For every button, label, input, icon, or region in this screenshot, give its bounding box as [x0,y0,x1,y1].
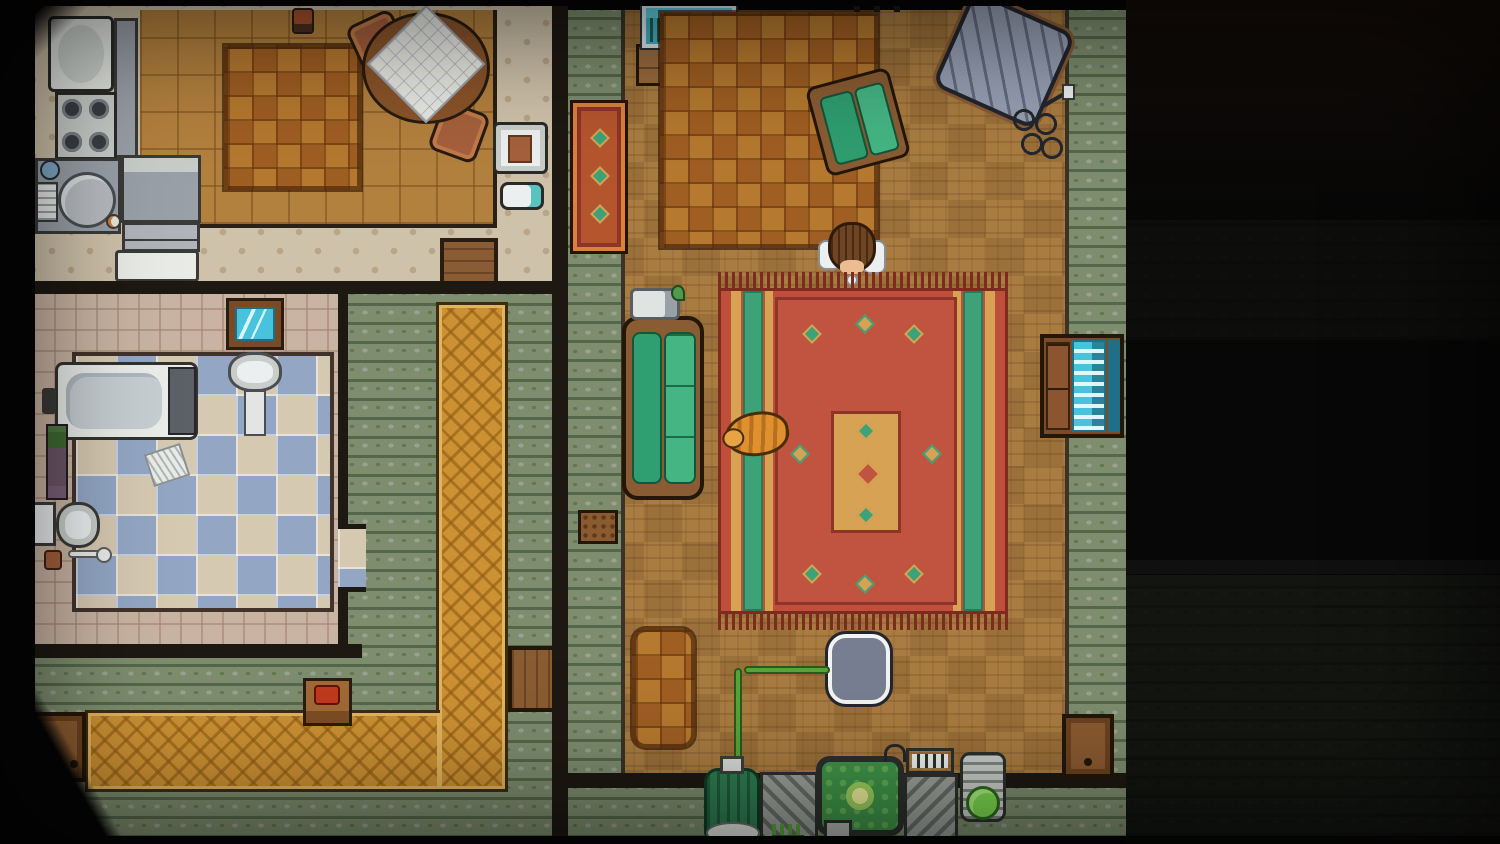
couch-seat [664,332,696,484]
burner [62,132,82,152]
potted-plant[interactable] [292,8,314,34]
tv-cabinet[interactable] [1040,334,1124,438]
telephone[interactable] [314,685,340,705]
game-viewport [0,0,1500,844]
kitchen-rug[interactable] [224,45,361,190]
burner [62,99,82,119]
canister-cap [720,756,744,774]
plunger[interactable] [68,550,102,558]
runner-vertical [436,302,508,792]
dark-area [1126,0,1500,844]
cabinet-side [1108,340,1120,432]
tub-basin [66,373,162,429]
bath-shelf[interactable] [46,424,68,500]
rug-green-stripe [963,291,983,611]
dark-carpet-hint [1126,575,1500,836]
dark-carpet-hint-upper [1126,220,1500,340]
dark-wall-line [1126,560,1500,574]
east-door[interactable] [1062,714,1114,778]
tub-faucet[interactable] [42,388,56,414]
couch-back [632,332,662,484]
rug-motif [922,444,942,464]
floor-item[interactable] [578,510,618,544]
toilet[interactable] [32,502,56,546]
door-knob [1084,758,1092,766]
machine-wire [884,744,906,762]
wall-outlet[interactable] [1062,84,1075,100]
vent-grill [906,748,954,774]
rug-motif [590,166,610,186]
burner [89,132,109,152]
goo-blob [966,786,1000,820]
mirror-glass [235,307,275,341]
toilet-bowl[interactable] [56,502,100,548]
rug-motif [904,564,924,584]
rug-motif [904,324,924,344]
rug-motif [855,461,880,486]
machine-tower [904,774,958,840]
burner [89,99,109,119]
hose-horizontal [744,666,830,674]
bathtub[interactable] [55,362,198,440]
slippers[interactable] [44,550,62,570]
cup[interactable] [106,214,121,229]
blue-dish[interactable] [40,160,60,180]
baby-potty[interactable] [500,182,544,210]
wall-center-vertical [552,0,568,844]
rug-band [985,291,995,611]
rug-medallion [831,411,901,533]
rug-motif [855,574,875,594]
tangled-cable[interactable] [1012,108,1064,162]
sink-pedestal [244,390,266,436]
counter-main [121,155,201,223]
rug-motif [802,324,822,344]
bathroom-doorway[interactable] [338,524,366,592]
corner-wedge-bottom-left [0,680,150,844]
small-checkered-rug [632,628,695,748]
rug-motif [855,314,875,334]
rug-fringe-bottom [718,612,1008,630]
rug-motif [790,444,810,464]
sofa-gadget[interactable] [630,288,680,320]
rug-field [775,297,957,605]
glowing-screen [1072,340,1106,432]
rug-motif [856,421,876,441]
counter-strip [114,18,138,158]
plunger-cup [96,547,112,563]
corner-wedge-top-left [0,0,90,70]
couch[interactable] [622,316,704,500]
high-chair[interactable] [493,122,548,174]
counter-drawers[interactable] [122,220,200,252]
ornate-rug [570,100,628,254]
wall-bathroom-south [33,644,362,658]
cabinet-doors [1046,342,1070,430]
high-chair-seat [508,135,532,163]
rug-motif [802,564,822,584]
gadget-leaf [671,285,685,301]
rug-motif [590,128,610,148]
rug-motif [590,204,610,224]
floor-pad[interactable] [828,634,890,704]
dark-brown-tint [1126,0,1500,220]
bathroom-mirror[interactable] [226,298,284,350]
stove[interactable] [55,92,117,160]
tub-end [168,367,196,435]
pedestal-sink[interactable] [228,352,282,392]
machine[interactable] [698,744,1010,844]
phone-table[interactable] [303,678,352,726]
rug-motif [856,505,876,525]
dish-rack[interactable] [36,182,58,222]
dishwasher[interactable] [115,250,199,282]
